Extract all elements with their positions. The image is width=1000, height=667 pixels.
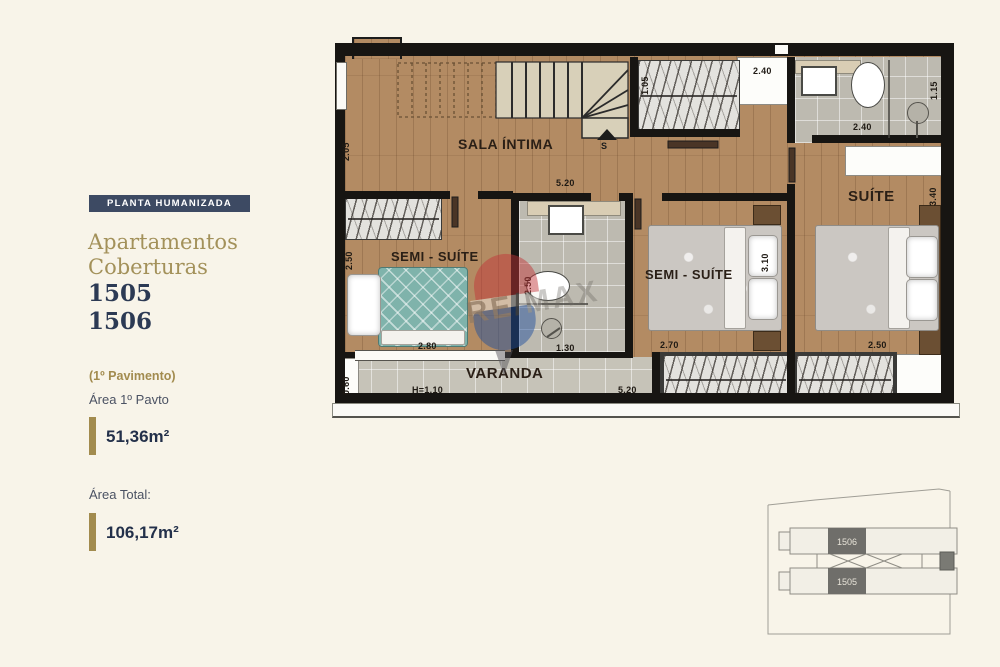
stair-direction-label: S	[601, 141, 607, 151]
dimension-label: 0.60	[341, 376, 351, 395]
dimension-label: 3.40	[928, 187, 938, 206]
plan-type-badge: PLANTA HUMANIZADA	[89, 195, 250, 212]
total-area-value: 106,17m²	[106, 523, 179, 543]
key-plan: 1506 1505	[757, 482, 995, 664]
key-plan-unit-bottom-label: 1505	[837, 577, 857, 587]
unit-number-1505: 1505	[88, 280, 152, 308]
floor-note: (1º Pavimento)	[89, 369, 176, 383]
dimension-label: 1.05	[640, 76, 650, 95]
page: PLANTA HUMANIZADA Apartamentos Cobertura…	[0, 0, 1000, 667]
page-title: Apartamentos Coberturas	[88, 230, 238, 280]
total-accent-bar	[89, 513, 96, 551]
room-label: VARANDA	[466, 365, 543, 382]
unit-number-1506: 1506	[88, 308, 152, 336]
title-line-1: Apartamentos	[88, 230, 238, 255]
key-plan-unit-top-label: 1506	[837, 537, 857, 547]
room-label: SEMI - SUÍTE	[645, 267, 733, 282]
dimension-label: 2.40	[853, 122, 872, 132]
dimension-label: 2.50	[868, 340, 887, 350]
dimension-label: 2.40	[753, 66, 772, 76]
dimension-label: 2.50	[523, 276, 533, 295]
room-label: SALA ÍNTIMA	[458, 136, 553, 152]
dimension-label: 2.50	[344, 251, 354, 270]
stair-direction-arrow	[597, 129, 617, 140]
room-label: SUÍTE	[848, 188, 895, 205]
stairs-linework	[335, 42, 955, 417]
dimension-label: 5.20	[556, 178, 575, 188]
dimension-label: 2.70	[660, 340, 679, 350]
dimension-label: 5.20	[618, 385, 637, 395]
dimension-label: 2.80	[418, 341, 437, 351]
unit-numbers: 1505 1506	[88, 280, 152, 335]
dimension-label: 1.15	[929, 81, 939, 100]
dimension-label: 2.05	[341, 142, 351, 161]
area-accent-bar	[89, 417, 96, 455]
dimension-label: H=1.10	[412, 385, 443, 395]
dimension-label: 1.30	[556, 343, 575, 353]
dimension-label: 3.10	[760, 253, 770, 272]
title-line-2: Coberturas	[88, 255, 238, 280]
area-label: Área 1º Pavto	[89, 392, 169, 407]
total-area-label: Área Total:	[89, 487, 151, 502]
area-value: 51,36m²	[106, 427, 169, 447]
room-label: SEMI - SUÍTE	[391, 249, 479, 264]
